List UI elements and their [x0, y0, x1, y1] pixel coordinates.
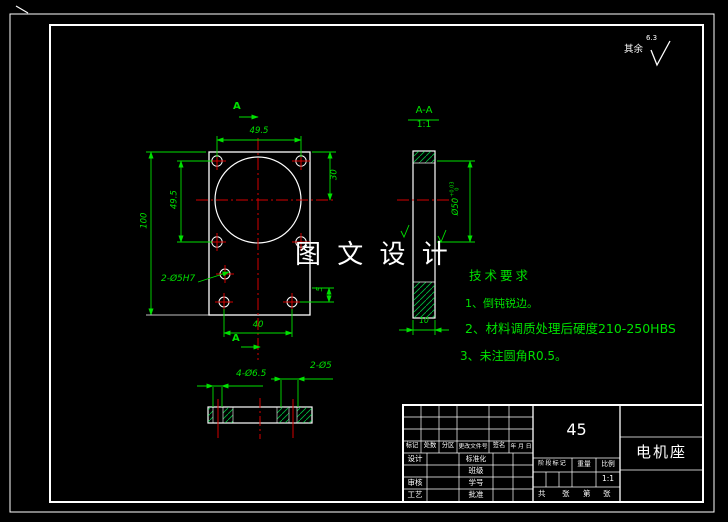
- tb-header-zone: 分区: [439, 443, 457, 450]
- tb-header-doc-no: 更改文件号: [457, 444, 489, 450]
- roughness-mark-left: [401, 225, 409, 237]
- tb-row-class: 班级: [459, 467, 493, 475]
- bore-tol-lower: 0: [456, 182, 461, 197]
- hole-callout: 2-Ø5H7: [161, 275, 195, 285]
- tb-header-mark: 标记: [403, 443, 421, 450]
- plate-outline: [209, 152, 310, 315]
- section-view: [397, 120, 475, 335]
- callout-small-holes: 2-Ø5: [310, 362, 332, 372]
- callout-large-holes: 4-Ø6.5: [236, 370, 266, 380]
- tb-row-approve: 批准: [459, 491, 493, 499]
- tb-sheet-unit-2: 张: [603, 490, 611, 498]
- tech-req-item-2: 2、材料调质处理后硬度210-250HBS: [465, 322, 676, 336]
- surface-finish-roughness: 6.3: [646, 35, 657, 43]
- tb-row-design: 设计: [403, 455, 427, 463]
- bottom-view-dimensions: [197, 379, 333, 407]
- section-hatch-bottom: [413, 282, 435, 318]
- dim-top-to-center: 30: [330, 160, 339, 190]
- tb-header-count: 处数: [421, 443, 439, 450]
- tb-row-student-no: 学号: [459, 479, 493, 487]
- front-view: [146, 117, 336, 360]
- tb-scale-header: 比例: [596, 461, 620, 468]
- tb-part-name: 电机座: [620, 444, 703, 461]
- tb-sheet-unit-1: 张: [562, 490, 570, 498]
- section-hatch-top: [413, 151, 435, 163]
- tb-sheet-total-label: 共: [538, 490, 546, 498]
- section-letter-bottom: A: [232, 333, 240, 344]
- mounting-holes: [212, 156, 306, 307]
- tb-stage-header: 阶段标记: [533, 461, 572, 468]
- watermark: 图 文 设 计: [295, 241, 452, 270]
- dim-bottom-holes: 40: [243, 321, 273, 330]
- bore-tolerance: +0.030: [451, 182, 461, 197]
- surface-finish-icon: [651, 41, 670, 65]
- bore-value: Ø50: [451, 198, 461, 216]
- tb-header-date: 年 月 日: [509, 444, 533, 450]
- section-letter-top: A: [233, 101, 241, 112]
- cad-drawing-canvas: 图 文 设 计 其余 6.3 49.5 49.5 100 30 5 40 2-Ø…: [0, 0, 728, 522]
- tb-row-standardization: 标准化: [459, 456, 493, 463]
- section-scale: 1:1: [407, 121, 441, 131]
- tb-material: 45: [533, 421, 620, 439]
- section-title: A-A: [407, 105, 441, 116]
- tb-row-process: 工艺: [403, 491, 427, 499]
- corner-tick: [16, 6, 28, 13]
- bore-dimension: Ø50+0.030: [451, 176, 462, 220]
- dim-small: 5: [316, 274, 324, 304]
- bottom-view: [197, 379, 333, 439]
- surface-finish-label: 其余: [624, 45, 643, 55]
- tech-req-item-3: 3、未注圆角R0.5。: [460, 350, 567, 363]
- dim-hole-spacing-v: 49.5: [170, 185, 179, 215]
- section-dimensions: [399, 120, 475, 335]
- tb-header-signature: 签名: [489, 443, 509, 450]
- tech-req-title: 技术要求: [469, 269, 531, 283]
- dim-thickness: 10: [409, 317, 439, 325]
- tech-req-item-1: 1、倒钝锐边。: [465, 298, 538, 310]
- tb-row-check: 审核: [403, 479, 427, 487]
- dim-hole-spacing-h: 49.5: [244, 127, 274, 136]
- tb-scale-value: 1:1: [596, 475, 620, 483]
- hole-callout-leader: [198, 272, 229, 282]
- tb-sheet-no-label: 第: [583, 490, 591, 498]
- dim-overall-height: 100: [140, 206, 149, 236]
- tb-weight-header: 重量: [572, 461, 596, 468]
